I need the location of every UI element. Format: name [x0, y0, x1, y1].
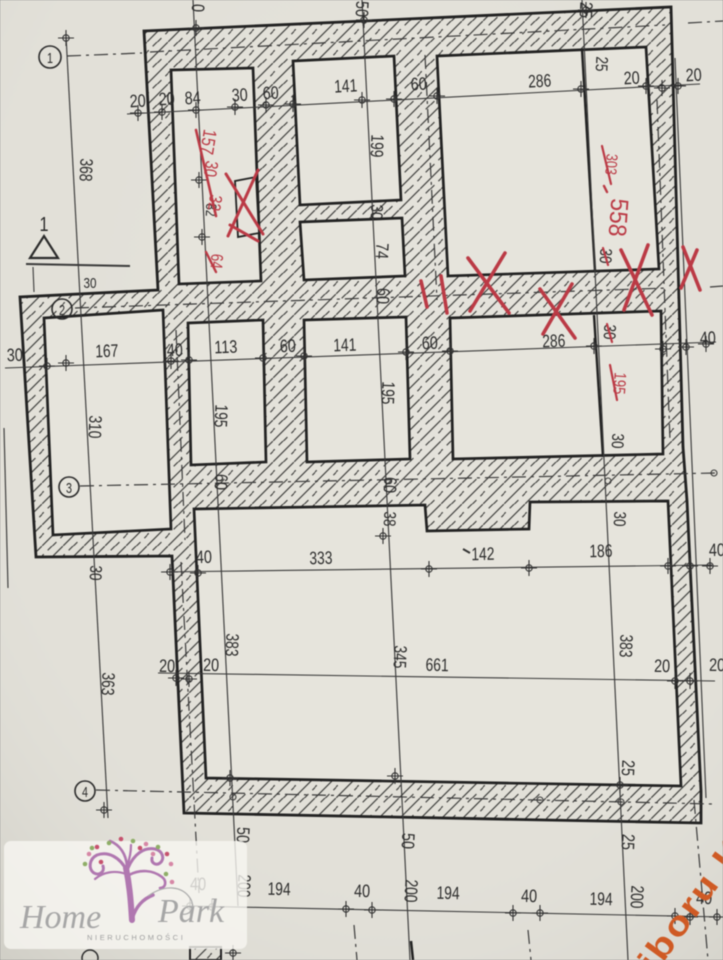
svg-text:60: 60 — [380, 477, 401, 494]
svg-text:363: 363 — [98, 672, 119, 696]
svg-text:20: 20 — [159, 656, 175, 676]
svg-text:286: 286 — [542, 331, 566, 352]
svg-text:142: 142 — [471, 544, 494, 564]
svg-text:3: 3 — [66, 480, 72, 497]
svg-text:60: 60 — [373, 288, 394, 305]
svg-text:200: 200 — [401, 879, 422, 903]
svg-text:25: 25 — [592, 56, 612, 72]
svg-text:30: 30 — [367, 204, 387, 220]
svg-text:60: 60 — [279, 336, 296, 357]
svg-text:Home: Home — [19, 899, 101, 936]
svg-text:1: 1 — [47, 50, 53, 67]
svg-text:199: 199 — [367, 134, 388, 158]
svg-text:333: 333 — [309, 548, 332, 568]
svg-text:0: 0 — [188, 4, 208, 13]
svg-text:30: 30 — [6, 345, 23, 366]
svg-text:30: 30 — [84, 275, 97, 292]
svg-text:25: 25 — [618, 834, 639, 851]
svg-text:50: 50 — [352, 1, 373, 18]
svg-text:38: 38 — [380, 511, 400, 527]
svg-text:50: 50 — [398, 833, 419, 850]
svg-text:40: 40 — [196, 547, 212, 567]
svg-text:25: 25 — [576, 2, 597, 19]
svg-text:167: 167 — [95, 341, 119, 362]
svg-text:194: 194 — [589, 889, 612, 909]
svg-text:60: 60 — [410, 74, 427, 95]
svg-text:40: 40 — [166, 340, 183, 361]
svg-text:60: 60 — [211, 474, 232, 491]
svg-text:30: 30 — [610, 511, 630, 527]
svg-text:25: 25 — [618, 760, 639, 777]
svg-text:20: 20 — [623, 68, 640, 89]
svg-text:60: 60 — [262, 83, 279, 104]
svg-text:141: 141 — [333, 335, 357, 356]
svg-text:Park: Park — [157, 893, 225, 930]
svg-text:50: 50 — [233, 827, 254, 844]
svg-text:2: 2 — [59, 302, 65, 319]
svg-text:186: 186 — [589, 541, 612, 561]
svg-text:20: 20 — [203, 655, 219, 675]
svg-text:40: 40 — [699, 328, 716, 349]
svg-text:286: 286 — [528, 70, 552, 91]
svg-text:113: 113 — [214, 337, 238, 358]
svg-text:30: 30 — [86, 565, 106, 581]
svg-text:195: 195 — [211, 404, 232, 428]
svg-text:310: 310 — [85, 415, 106, 439]
svg-text:60: 60 — [421, 333, 438, 354]
svg-text:20: 20 — [709, 655, 723, 675]
svg-text:383: 383 — [616, 634, 637, 658]
svg-text:194: 194 — [436, 883, 459, 903]
svg-text:200: 200 — [627, 885, 648, 909]
svg-text:40: 40 — [354, 881, 370, 901]
svg-text:661: 661 — [425, 655, 448, 675]
svg-text:4: 4 — [82, 784, 88, 801]
svg-text:1: 1 — [40, 214, 49, 236]
svg-text:383: 383 — [222, 633, 243, 657]
svg-text:20: 20 — [158, 89, 175, 110]
svg-text:20: 20 — [685, 65, 702, 86]
svg-text:20: 20 — [129, 91, 146, 112]
svg-text:141: 141 — [334, 75, 358, 96]
svg-text:84: 84 — [184, 88, 201, 109]
svg-text:195: 195 — [378, 381, 399, 405]
svg-text:40: 40 — [521, 886, 537, 906]
svg-text:NIERUCHOMOŚCI: NIERUCHOMOŚCI — [87, 933, 185, 942]
svg-text:345: 345 — [390, 645, 411, 669]
svg-text:194: 194 — [267, 879, 290, 899]
svg-text:40: 40 — [709, 540, 723, 560]
svg-text:20: 20 — [654, 656, 670, 676]
svg-text:368: 368 — [76, 158, 97, 182]
svg-text:558: 558 — [603, 198, 634, 238]
svg-text:30: 30 — [608, 433, 628, 449]
svg-text:30: 30 — [231, 85, 248, 106]
svg-text:74: 74 — [372, 243, 393, 260]
